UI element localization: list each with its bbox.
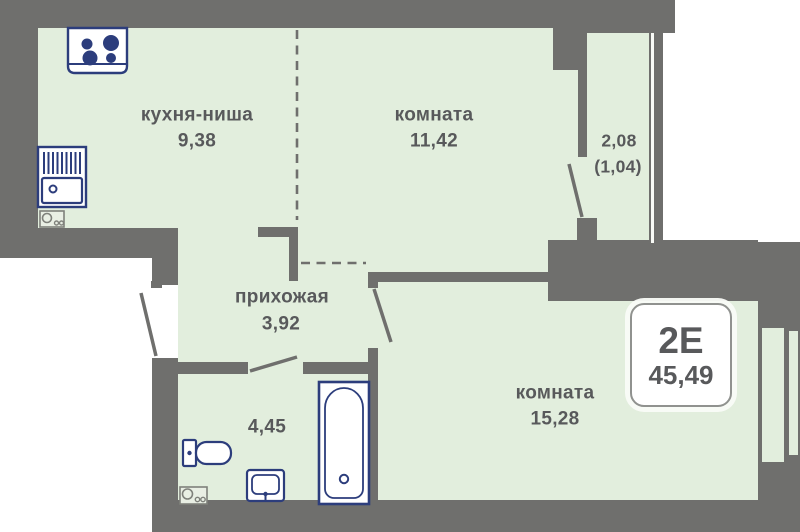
label-hallway-name: прихожая [235,288,329,307]
floor-plan: кухня-ниша 9,38 комната 11,42 2,08 (1,04… [0,0,800,532]
stove-icon [68,28,127,73]
apartment-badge: 2Е 45,49 [630,303,732,407]
room2-door-leaf [374,289,391,342]
label-room1-area: 11,42 [410,132,458,151]
bathtub-icon [319,382,369,504]
label-kitchen-name: кухня-ниша [141,106,253,125]
utility-riser-icon [40,211,64,227]
washbasin-icon [247,470,284,501]
toilet-icon [183,440,231,466]
label-kitchen-area: 9,38 [178,132,216,151]
balcony-door-leaf [569,164,582,217]
entrance-door-leaf [141,293,156,356]
utility-riser-icon [180,487,207,504]
kitchen-sink-icon [38,147,86,207]
apartment-type: 2Е [658,322,703,359]
label-room2-area: 15,28 [530,410,579,429]
plan-overlay [0,0,800,532]
label-balcony-area-coefficient: (1,04) [594,158,642,176]
label-room2-name: комната [516,384,595,403]
label-room1-name: комната [395,106,474,125]
label-hallway-area: 3,92 [262,315,300,334]
bathroom-door-leaf [250,357,297,371]
label-bathroom-area: 4,45 [248,418,286,437]
apartment-total-area: 45,49 [648,362,713,388]
label-balcony-area: 2,08 [601,132,636,150]
